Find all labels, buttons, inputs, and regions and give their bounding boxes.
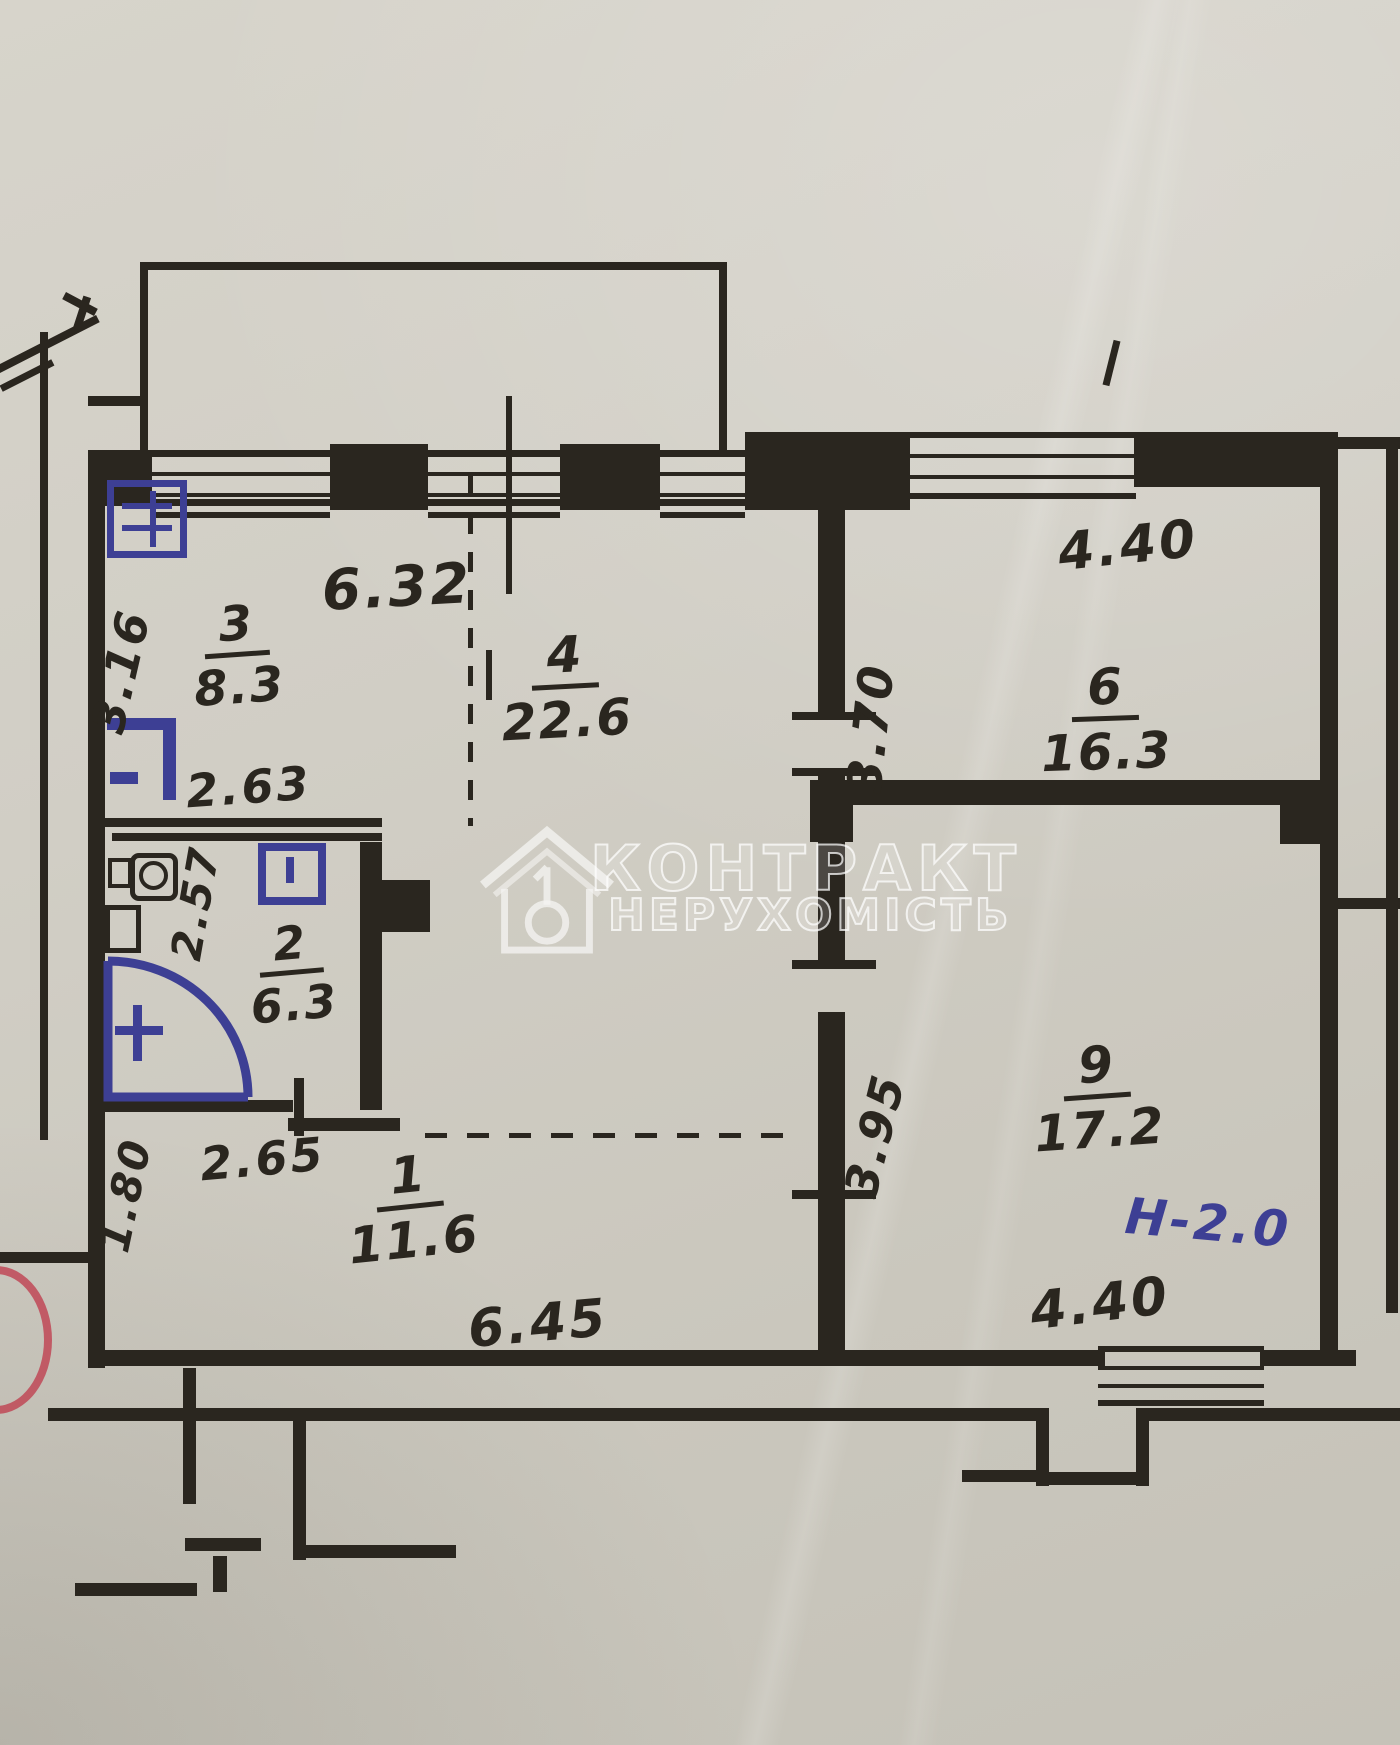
neighbor-stub-mid xyxy=(1336,898,1400,909)
bath-partition-line-b xyxy=(112,833,382,841)
room-2-area: 6.3 xyxy=(248,971,340,1030)
top-wall-right-block xyxy=(1134,432,1336,487)
dim-room9-bottom: 4.40 xyxy=(1027,1270,1173,1339)
room-4-area: 22.6 xyxy=(500,686,634,749)
neighbor-wall-right xyxy=(1386,437,1398,1313)
building-outline-bottom-left xyxy=(48,1408,1040,1421)
top-wall-junction-pier xyxy=(745,432,910,510)
room-2-number: 2 xyxy=(255,917,324,977)
steps-line-c xyxy=(293,1415,306,1560)
window-room9-bottom xyxy=(1098,1346,1264,1406)
survey-tick-top xyxy=(506,396,512,594)
dim-room6-left: 3.70 xyxy=(841,661,902,796)
room-4-label: 4 22.6 xyxy=(497,627,634,749)
stamp-inner-line xyxy=(122,525,172,531)
porch-notch-bottom xyxy=(1036,1472,1149,1485)
gas-stamp-foot xyxy=(110,772,138,784)
room-2-label: 2 6.3 xyxy=(244,916,340,1030)
room-1-label: 1 11.6 xyxy=(339,1143,482,1271)
balcony-wall-right xyxy=(719,262,727,455)
bathtub-mark-v xyxy=(133,1005,142,1061)
steps-line-b xyxy=(75,1583,197,1596)
steps-line-e xyxy=(185,1538,261,1551)
room-4-number: 4 xyxy=(529,628,599,690)
door-jamb-tick-3 xyxy=(792,960,876,969)
dashed-line-room3-room4 xyxy=(468,476,473,826)
stamp-inner-line xyxy=(122,503,172,509)
porch-stub xyxy=(962,1470,1038,1482)
dim-room2-bottom: 2.65 xyxy=(198,1131,327,1188)
red-circle-annotation xyxy=(0,1266,52,1414)
window-room6 xyxy=(910,432,1136,499)
room-3-number: 3 xyxy=(201,598,270,659)
room-3-area: 8.3 xyxy=(192,654,287,714)
dim-extension-tick xyxy=(486,650,492,700)
stamp-inner-line xyxy=(150,491,156,547)
bath-partition-line-a xyxy=(100,818,382,827)
top-wall-pier-2 xyxy=(560,444,660,510)
meter-stamp-icon xyxy=(258,843,326,905)
bath-door-block xyxy=(378,880,430,932)
divider-wall-6-9 xyxy=(845,780,1322,805)
interior-wall-upper xyxy=(818,506,845,716)
dim-room9-left: 3.95 xyxy=(837,1069,912,1202)
steps-line-d xyxy=(293,1545,456,1558)
bath-door-tick xyxy=(294,1078,304,1136)
steps-line-a xyxy=(183,1368,196,1504)
toilet-tank-icon xyxy=(108,858,132,888)
top-wall-pier-1 xyxy=(330,444,428,510)
steps-line-f xyxy=(213,1556,227,1592)
balcony-wall-left xyxy=(140,262,148,455)
balcony-stub xyxy=(88,396,146,406)
ceiling-height-note: Н-2.0 xyxy=(1123,1191,1293,1255)
left-dim-tick xyxy=(0,1252,97,1263)
divider-end-block xyxy=(1280,798,1324,844)
dim-room3-bottom: 2.63 xyxy=(185,760,313,815)
room-3-label: 3 8.3 xyxy=(188,597,287,714)
dim-hall-bottom: 6.45 xyxy=(466,1292,610,1356)
stamp-inner-line xyxy=(286,857,294,883)
dim-room6-top: 4.40 xyxy=(1056,513,1201,579)
room-1-number: 1 xyxy=(371,1147,444,1213)
dashed-line-hall-room4 xyxy=(425,1133,801,1138)
building-outline-bottom-right xyxy=(1148,1408,1400,1421)
room-9-label: 9 17.2 xyxy=(1028,1036,1167,1160)
washbasin-icon xyxy=(105,905,141,953)
toilet-seat-icon xyxy=(139,861,168,890)
outer-line-left xyxy=(40,332,48,1140)
room-1-area: 11.6 xyxy=(346,1202,483,1271)
watermark-subtitle: НЕРУХОМІСТЬ xyxy=(608,894,1012,938)
survey-tick-top-right xyxy=(1103,340,1121,386)
room-6-label: 6 16.3 xyxy=(1038,660,1173,780)
room-6-area: 16.3 xyxy=(1040,719,1173,780)
right-wall xyxy=(1320,432,1338,1355)
dim-top-wall: 6.32 xyxy=(321,556,474,620)
room-9-area: 17.2 xyxy=(1032,1094,1167,1159)
bottom-wall-left xyxy=(95,1350,1105,1366)
balcony-wall-top xyxy=(140,262,727,270)
bottom-wall-right xyxy=(1260,1350,1356,1366)
window-room4-a xyxy=(428,450,560,518)
floor-plan: КОНТРАКТ НЕРУХОМІСТЬ 3 8.3 4 22.6 6 16.3… xyxy=(0,0,1400,1745)
room-9-number: 9 xyxy=(1060,1038,1131,1102)
radiator-stamp-icon xyxy=(107,480,187,558)
window-room4-b xyxy=(660,450,745,518)
room-6-number: 6 xyxy=(1070,661,1139,722)
